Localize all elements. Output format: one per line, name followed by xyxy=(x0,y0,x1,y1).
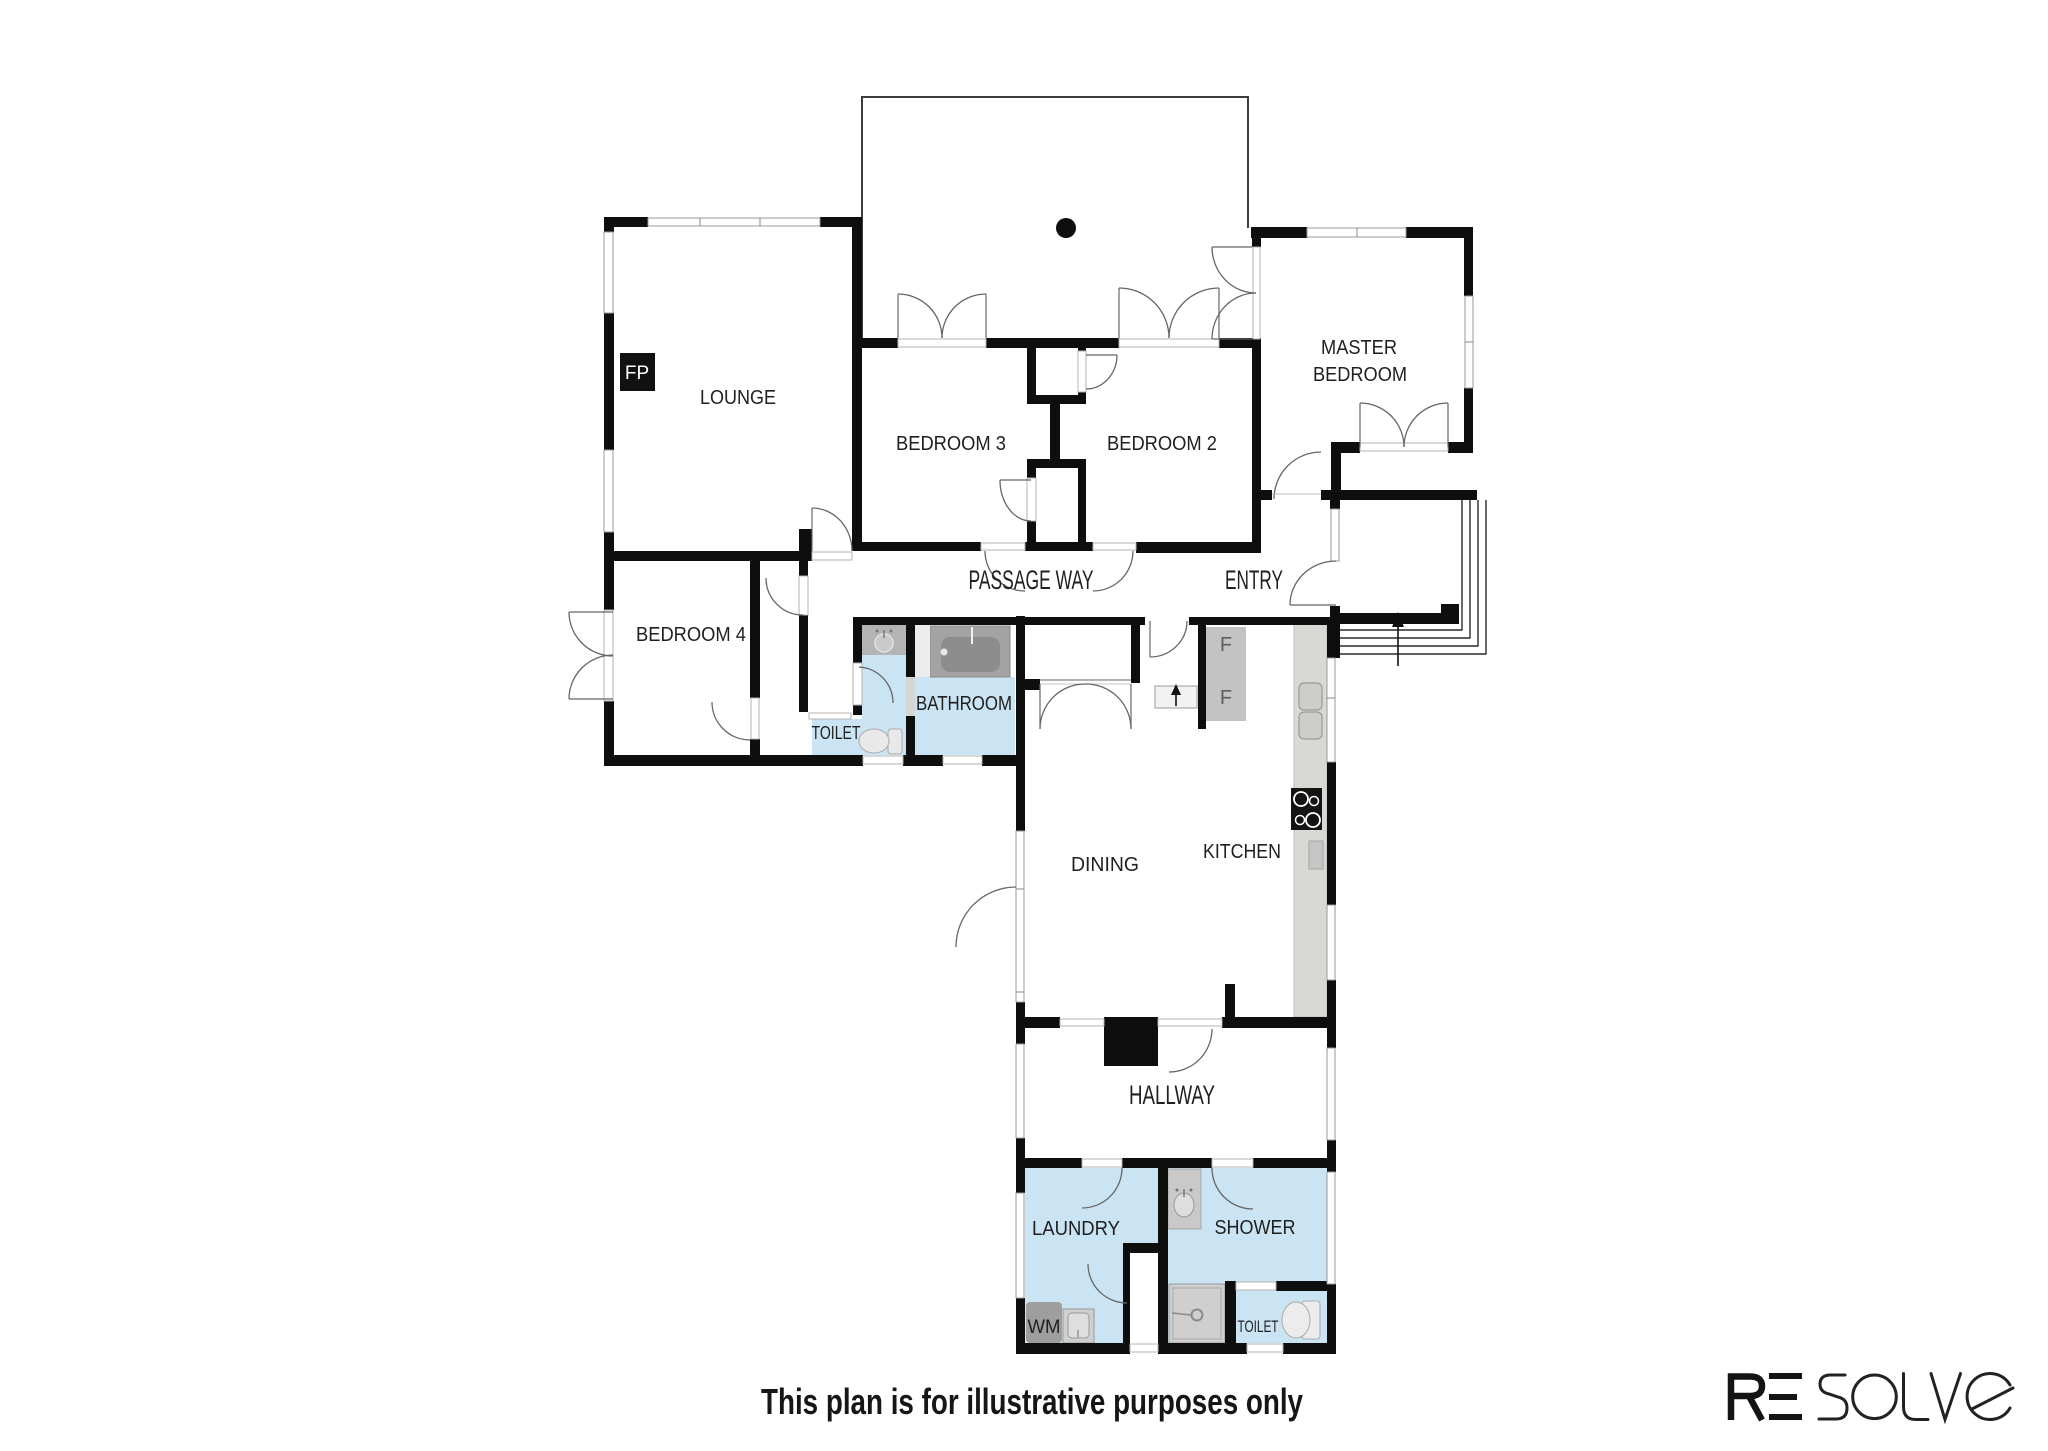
svg-text:BEDROOM 3: BEDROOM 3 xyxy=(896,433,1006,455)
svg-text:MASTER: MASTER xyxy=(1321,337,1397,359)
svg-text:F: F xyxy=(1220,687,1232,709)
svg-text:WM: WM xyxy=(1028,1317,1061,1338)
svg-text:DINING: DINING xyxy=(1071,854,1139,876)
svg-text:This plan is for illustrative: This plan is for illustrative purposes o… xyxy=(761,1381,1303,1422)
svg-text:TOILET: TOILET xyxy=(812,723,861,743)
svg-text:BATHROOM: BATHROOM xyxy=(916,693,1012,715)
svg-text:KITCHEN: KITCHEN xyxy=(1203,841,1281,863)
svg-text:SHOWER: SHOWER xyxy=(1215,1217,1296,1239)
svg-text:F: F xyxy=(1220,634,1232,656)
svg-text:LOUNGE: LOUNGE xyxy=(700,387,776,409)
svg-text:HALLWAY: HALLWAY xyxy=(1129,1080,1215,1110)
svg-text:LAUNDRY: LAUNDRY xyxy=(1032,1218,1120,1240)
svg-text:BEDROOM 2: BEDROOM 2 xyxy=(1107,433,1217,455)
svg-text:PASSAGE WAY: PASSAGE WAY xyxy=(969,565,1094,595)
svg-text:BEDROOM 4: BEDROOM 4 xyxy=(636,624,746,646)
svg-text:FP: FP xyxy=(625,363,649,384)
svg-text:ENTRY: ENTRY xyxy=(1225,565,1283,595)
svg-text:BEDROOM: BEDROOM xyxy=(1313,364,1407,386)
svg-text:TOILET: TOILET xyxy=(1238,1317,1279,1336)
